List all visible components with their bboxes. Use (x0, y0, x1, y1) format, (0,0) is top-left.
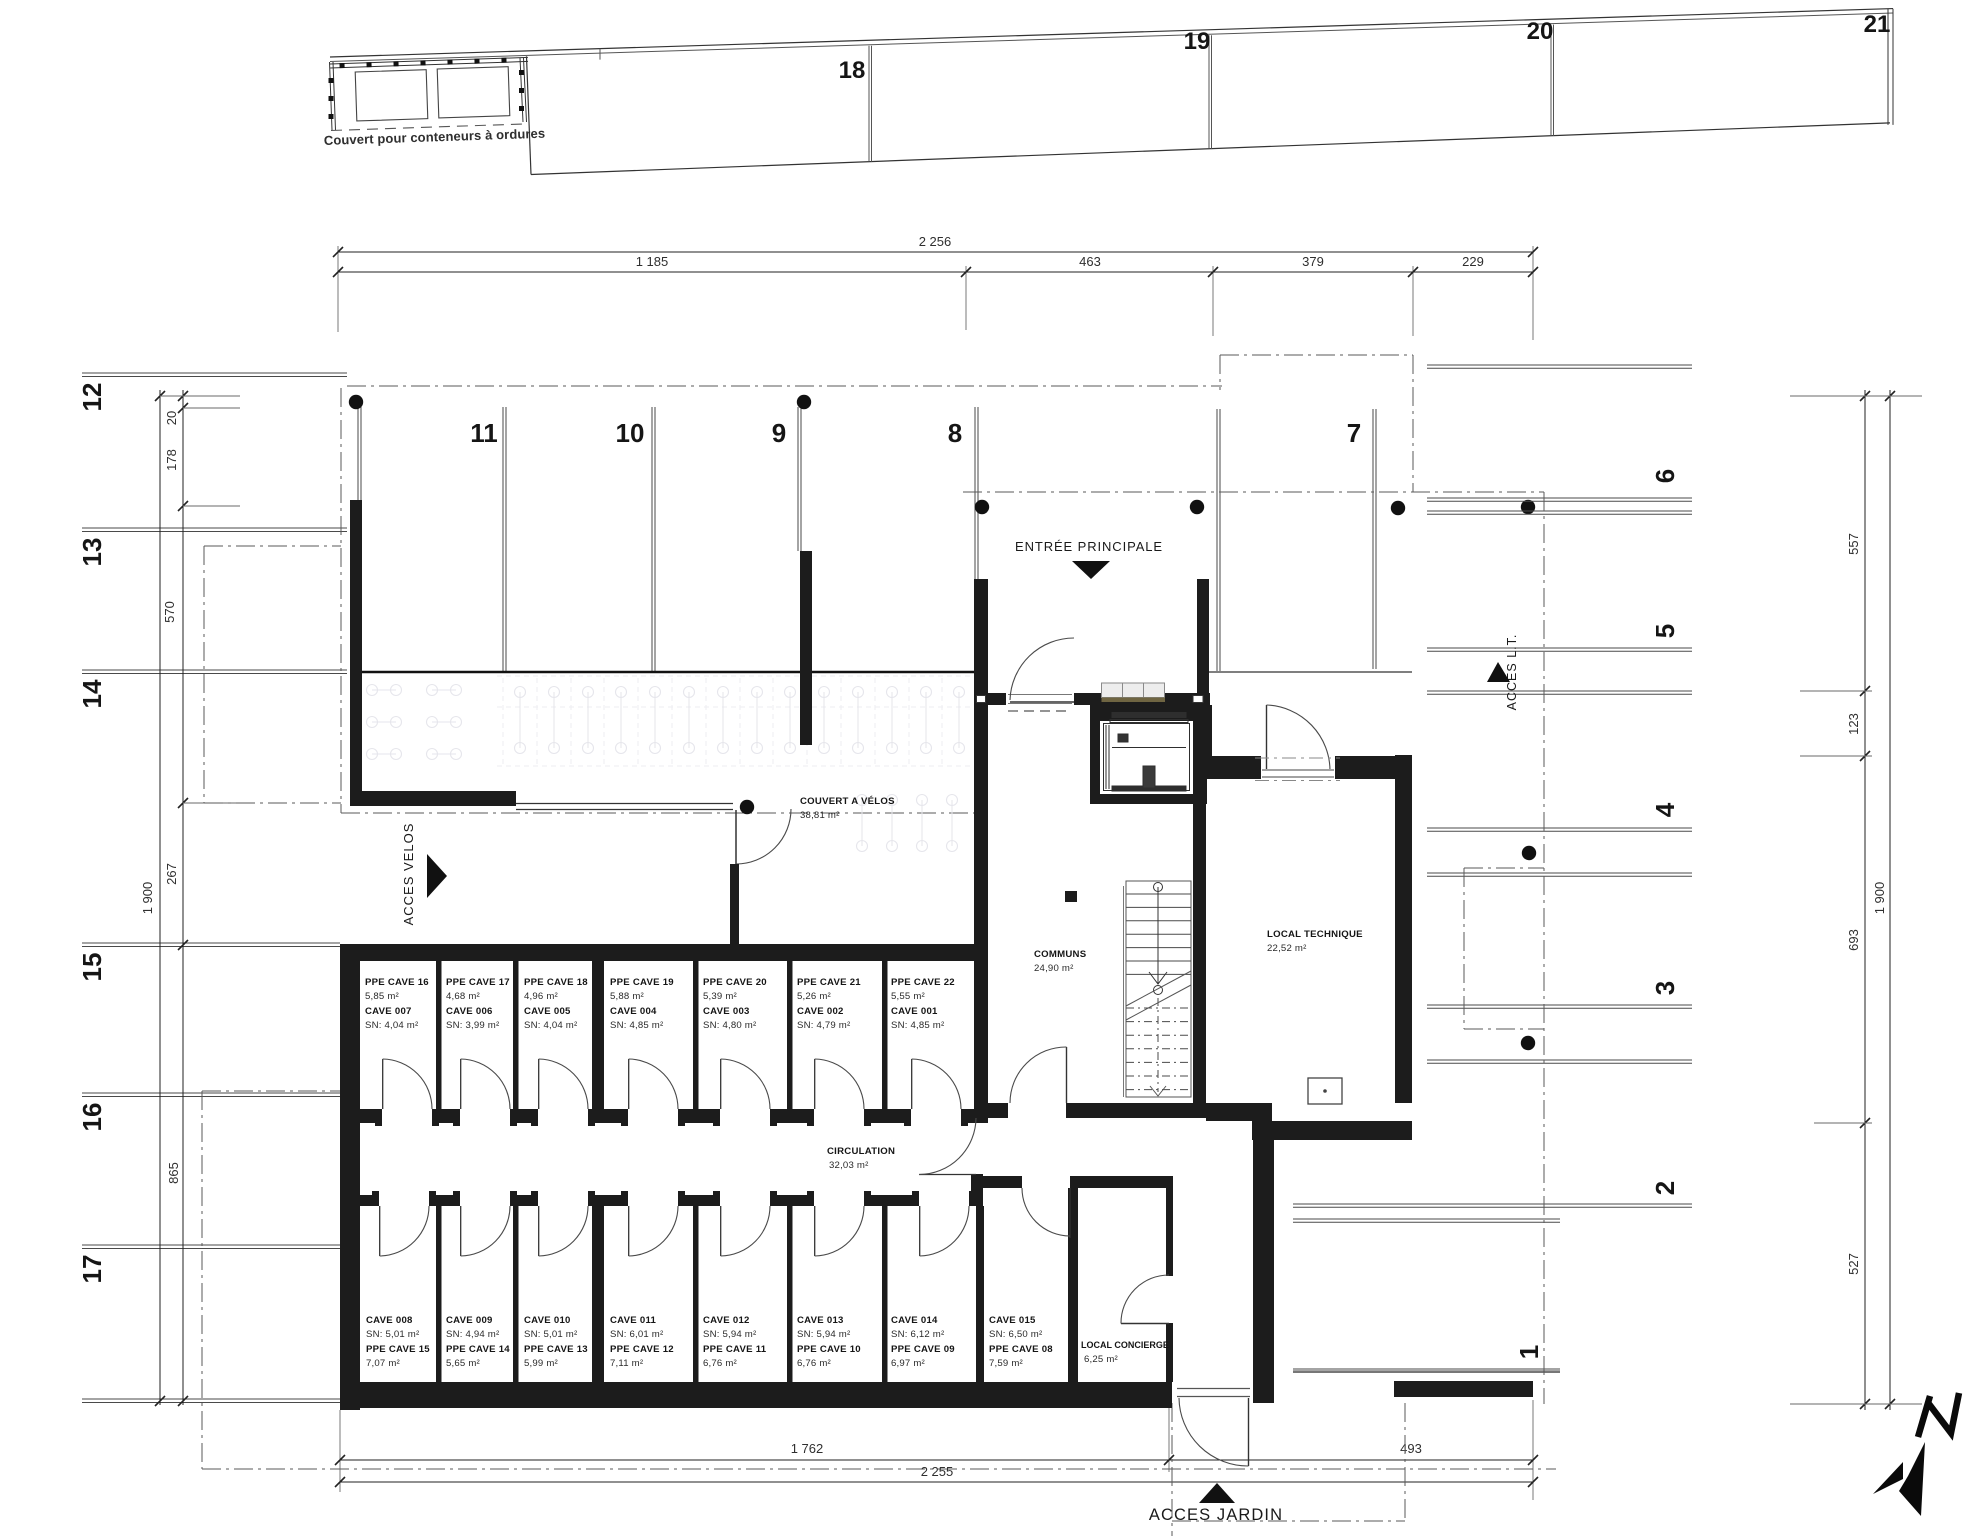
svg-text:PPE CAVE 19: PPE CAVE 19 (610, 977, 674, 988)
svg-text:CAVE 005: CAVE 005 (524, 1006, 571, 1017)
svg-text:24,90 m²: 24,90 m² (1034, 963, 1074, 974)
svg-text:693: 693 (1846, 929, 1861, 951)
svg-text:2: 2 (1650, 1181, 1680, 1195)
svg-text:PPE CAVE 21: PPE CAVE 21 (797, 977, 861, 988)
svg-text:PPE CAVE 08: PPE CAVE 08 (989, 1344, 1053, 1355)
svg-text:ACCES VELOS: ACCES VELOS (401, 823, 416, 926)
svg-text:493: 493 (1400, 1441, 1422, 1456)
svg-text:16: 16 (77, 1103, 107, 1132)
svg-text:PPE CAVE 10: PPE CAVE 10 (797, 1344, 861, 1355)
svg-text:7,11 m²: 7,11 m² (610, 1358, 644, 1369)
svg-text:20: 20 (164, 411, 179, 425)
svg-text:PPE CAVE 14: PPE CAVE 14 (446, 1344, 510, 1355)
svg-text:CAVE 004: CAVE 004 (610, 1006, 657, 1017)
svg-text:6,97 m²: 6,97 m² (891, 1358, 926, 1369)
svg-text:7: 7 (1347, 418, 1361, 448)
svg-text:PPE CAVE 09: PPE CAVE 09 (891, 1344, 955, 1355)
svg-text:1: 1 (1514, 1345, 1544, 1359)
svg-text:SN: 4,04 m²: SN: 4,04 m² (365, 1020, 419, 1031)
svg-text:SN: 4,94 m²: SN: 4,94 m² (446, 1329, 500, 1340)
svg-text:PPE CAVE 11: PPE CAVE 11 (703, 1344, 767, 1355)
svg-text:CAVE 010: CAVE 010 (524, 1315, 571, 1326)
svg-text:1 900: 1 900 (1872, 882, 1887, 915)
svg-text:PPE CAVE 13: PPE CAVE 13 (524, 1344, 588, 1355)
svg-text:527: 527 (1846, 1253, 1861, 1275)
svg-text:7,07 m²: 7,07 m² (366, 1358, 401, 1369)
svg-text:SN: 4,85 m²: SN: 4,85 m² (610, 1020, 664, 1031)
svg-text:LOCAL CONCIERGE: LOCAL CONCIERGE (1081, 1340, 1169, 1350)
svg-text:865: 865 (166, 1162, 181, 1184)
svg-text:2 255: 2 255 (921, 1464, 954, 1479)
svg-text:1 762: 1 762 (791, 1441, 824, 1456)
svg-text:CAVE 015: CAVE 015 (989, 1315, 1036, 1326)
svg-text:CAVE 013: CAVE 013 (797, 1315, 844, 1326)
svg-text:5: 5 (1650, 624, 1680, 638)
svg-text:COUVERT A VÉLOS: COUVERT A VÉLOS (800, 795, 895, 807)
svg-text:18: 18 (839, 57, 866, 84)
svg-text:178: 178 (164, 449, 179, 471)
svg-text:SN: 5,94 m²: SN: 5,94 m² (797, 1329, 851, 1340)
svg-text:2 256: 2 256 (919, 234, 952, 249)
svg-text:21: 21 (1864, 11, 1891, 38)
svg-text:379: 379 (1302, 254, 1324, 269)
svg-text:SN: 4,85 m²: SN: 4,85 m² (891, 1020, 945, 1031)
svg-text:SN: 6,50 m²: SN: 6,50 m² (989, 1329, 1043, 1340)
svg-text:PPE CAVE 16: PPE CAVE 16 (365, 977, 429, 988)
svg-text:CAVE 002: CAVE 002 (797, 1006, 844, 1017)
svg-text:1 900: 1 900 (140, 882, 155, 915)
svg-text:9: 9 (772, 418, 786, 448)
svg-text:32,03 m²: 32,03 m² (829, 1160, 869, 1171)
svg-text:CIRCULATION: CIRCULATION (827, 1146, 895, 1157)
svg-text:12: 12 (77, 383, 107, 412)
svg-text:229: 229 (1462, 254, 1484, 269)
svg-text:CAVE 007: CAVE 007 (365, 1006, 412, 1017)
svg-text:COMMUNS: COMMUNS (1034, 949, 1087, 960)
svg-text:5,39 m²: 5,39 m² (703, 991, 738, 1002)
svg-text:SN: 5,94 m²: SN: 5,94 m² (703, 1329, 757, 1340)
svg-text:38,81 m²: 38,81 m² (800, 810, 840, 821)
svg-text:123: 123 (1846, 713, 1861, 735)
svg-text:PPE CAVE 17: PPE CAVE 17 (446, 977, 510, 988)
svg-text:570: 570 (162, 601, 177, 623)
svg-text:3: 3 (1650, 981, 1680, 995)
svg-text:5,65 m²: 5,65 m² (446, 1358, 481, 1369)
svg-text:6,76 m²: 6,76 m² (703, 1358, 738, 1369)
svg-text:19: 19 (1184, 28, 1211, 55)
svg-text:CAVE 001: CAVE 001 (891, 1006, 938, 1017)
svg-text:CAVE 014: CAVE 014 (891, 1315, 938, 1326)
svg-text:LOCAL TECHNIQUE: LOCAL TECHNIQUE (1267, 929, 1363, 940)
svg-text:4,96 m²: 4,96 m² (524, 991, 559, 1002)
svg-text:5,55 m²: 5,55 m² (891, 991, 926, 1002)
svg-text:6,25 m²: 6,25 m² (1084, 1354, 1119, 1365)
svg-text:CAVE 003: CAVE 003 (703, 1006, 750, 1017)
svg-text:463: 463 (1079, 254, 1101, 269)
svg-text:15: 15 (77, 953, 107, 982)
svg-text:10: 10 (616, 418, 645, 448)
svg-text:6: 6 (1650, 469, 1680, 483)
svg-text:SN: 4,80 m²: SN: 4,80 m² (703, 1020, 757, 1031)
svg-text:7,59 m²: 7,59 m² (989, 1358, 1024, 1369)
svg-text:11: 11 (470, 418, 498, 448)
svg-text:ACCES L.T.: ACCES L.T. (1505, 634, 1519, 711)
svg-text:PPE CAVE 22: PPE CAVE 22 (891, 977, 955, 988)
svg-text:17: 17 (77, 1255, 107, 1284)
svg-text:SN: 5,01 m²: SN: 5,01 m² (366, 1329, 420, 1340)
svg-text:1 185: 1 185 (636, 254, 669, 269)
svg-text:22,52 m²: 22,52 m² (1267, 943, 1307, 954)
svg-text:5,26 m²: 5,26 m² (797, 991, 832, 1002)
svg-text:6,76 m²: 6,76 m² (797, 1358, 832, 1369)
svg-text:4,68 m²: 4,68 m² (446, 991, 481, 1002)
svg-text:CAVE 006: CAVE 006 (446, 1006, 493, 1017)
svg-text:5,88 m²: 5,88 m² (610, 991, 645, 1002)
svg-text:PPE CAVE 18: PPE CAVE 18 (524, 977, 588, 988)
svg-text:13: 13 (77, 538, 107, 567)
svg-text:ENTRÉE PRINCIPALE: ENTRÉE PRINCIPALE (1015, 539, 1163, 554)
svg-text:CAVE 009: CAVE 009 (446, 1315, 493, 1326)
svg-text:5,99 m²: 5,99 m² (524, 1358, 559, 1369)
svg-text:PPE CAVE 20: PPE CAVE 20 (703, 977, 767, 988)
svg-text:PPE CAVE 15: PPE CAVE 15 (366, 1344, 430, 1355)
svg-text:8: 8 (948, 418, 962, 448)
svg-text:PPE CAVE 12: PPE CAVE 12 (610, 1344, 674, 1355)
svg-text:20: 20 (1527, 18, 1554, 45)
svg-text:SN: 4,79 m²: SN: 4,79 m² (797, 1020, 851, 1031)
svg-text:557: 557 (1846, 533, 1861, 555)
svg-text:SN: 5,01 m²: SN: 5,01 m² (524, 1329, 578, 1340)
svg-text:267: 267 (164, 863, 179, 885)
svg-text:CAVE 008: CAVE 008 (366, 1315, 413, 1326)
svg-text:5,85 m²: 5,85 m² (365, 991, 400, 1002)
svg-text:CAVE 011: CAVE 011 (610, 1315, 656, 1326)
svg-text:SN: 6,01 m²: SN: 6,01 m² (610, 1329, 664, 1340)
svg-text:4: 4 (1650, 802, 1680, 817)
svg-text:SN: 4,04 m²: SN: 4,04 m² (524, 1020, 578, 1031)
svg-text:SN: 3,99 m²: SN: 3,99 m² (446, 1020, 500, 1031)
svg-text:CAVE 012: CAVE 012 (703, 1315, 750, 1326)
svg-text:14: 14 (77, 679, 107, 708)
svg-text:SN: 6,12 m²: SN: 6,12 m² (891, 1329, 945, 1340)
